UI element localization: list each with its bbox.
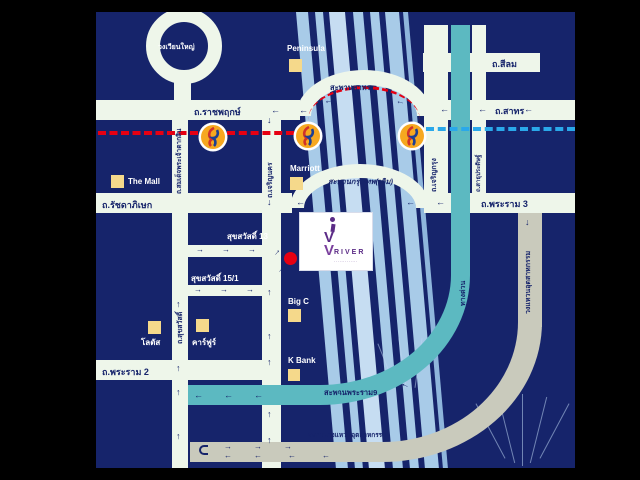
arrow-right-icon: → (220, 286, 228, 294)
arrow-left-icon: ← (224, 452, 232, 460)
bts-station-icon (198, 122, 228, 152)
location-map: วงเวียนใหญ่ ถ.ราชพฤกษ์ ถ.สีลม ถ.สาทร สะพ… (96, 12, 575, 468)
arrow-up-icon: ↑ (176, 388, 181, 397)
road-label-suksawat: ถ.สุขสวัสดิ์ (175, 298, 186, 344)
soi-label-suksawat-13: สุขสวัสดิ์ 13 (227, 230, 268, 243)
road-label-silom: ถ.สีลม (492, 57, 517, 71)
logo-tagline: ············· (334, 259, 358, 264)
arrow-left-icon: ← (288, 452, 296, 460)
landmark-label-kbank: K Bank (288, 356, 316, 365)
landmark-marker-bigc (288, 309, 301, 322)
arrow-left-icon: ← (524, 105, 533, 114)
project-location-marker (284, 252, 297, 265)
bridge-label-industrial-ring: สะพานวงแหวนอุตสาหกรรม (308, 430, 386, 440)
arrow-right-icon: → (194, 286, 202, 294)
landmark-marker-the-mall (111, 175, 124, 188)
ring-road-curve-bridge (360, 302, 542, 462)
bts-line-red-dashed-mid (227, 131, 294, 135)
road-label-rama2: ถ.พระราม 2 (102, 365, 149, 379)
arrow-right-icon: → (196, 246, 204, 254)
landmark-label-marriott: Marriott (290, 164, 320, 173)
bridge-label-rama9: สะพานพระราม9 (324, 387, 377, 399)
arrow-down-icon: ↓ (267, 116, 272, 125)
arrow-left-icon: ← (478, 105, 487, 114)
ring-road-horizontal (190, 442, 364, 462)
arrow-left-icon: ← (224, 391, 233, 400)
bridge-cable (530, 397, 547, 463)
landmark-label-peninsula: Peninsula (287, 44, 325, 53)
road-label-ratchaphruek: ถ.ราชพฤกษ์ (194, 105, 241, 119)
bridge-cable (522, 394, 523, 466)
expressway-vertical (451, 25, 470, 252)
landmark-label-bigc: Big C (288, 297, 309, 306)
road-label-charoen-nakhon: ถ.เจริญนคร (265, 148, 276, 198)
bts-station-icon (293, 121, 323, 151)
arrow-left-icon: ← (395, 96, 406, 107)
arrow-down-icon: ↓ (525, 218, 530, 227)
soi-label-suksawat-15-1: สุขสวัสดิ์ 15/1 (191, 272, 239, 285)
map-image-frame: วงเวียนใหญ่ ถ.ราชพฤกษ์ ถ.สีลม ถ.สาทร สะพ… (0, 0, 640, 480)
arrow-right-icon: → (254, 443, 262, 451)
road-label-sathorn: ถ.สาทร (495, 104, 524, 118)
arrow-up-icon: ↑ (267, 288, 272, 297)
landmark-label-lotus: โลตัส (141, 336, 160, 349)
landmark-marker-peninsula (289, 59, 302, 72)
arrow-left-icon: ← (436, 198, 445, 207)
expressway-horizontal (188, 385, 300, 405)
arrow-left-icon: ← (406, 198, 415, 207)
logo-i-dot (330, 217, 335, 222)
arrow-left-icon: ← (323, 95, 334, 106)
ivy-river-logo: V V RIVER ············· (300, 213, 372, 270)
expressway-label: ทางด่วน (458, 270, 469, 306)
roundabout-label: วงเวียนใหญ่ (158, 42, 195, 53)
road-label-sathu-pradit: ถ.สาธุประดิษฐ์ (474, 136, 484, 192)
road-label-ratchadaphisek: ถ.รัชดาภิเษก (102, 198, 152, 212)
arrow-up-icon: ↑ (267, 410, 272, 419)
bridge-cable (540, 403, 570, 458)
arrow-left-icon: ← (296, 198, 305, 207)
logo-brand-text: RIVER (334, 249, 365, 256)
arrow-right-icon: → (224, 443, 232, 451)
road-label-taksin: ถ.สมเด็จพระเจ้าตากสิน (175, 122, 185, 194)
arrow-up-icon: ↑ (267, 332, 272, 341)
landmark-marker-carrefour (196, 319, 209, 332)
road-label-rama3: ถ.พระราม 3 (481, 197, 528, 211)
landmark-marker-lotus (148, 321, 161, 334)
landmark-label-the-mall: The Mall (128, 177, 160, 186)
arrow-right-icon: → (222, 246, 230, 254)
arrow-left-icon: ← (194, 391, 203, 400)
bridge-label-sathorn: สะพานสาทร (330, 82, 371, 94)
arrow-left-icon: ← (322, 452, 330, 460)
arrow-down-icon: ↓ (267, 198, 272, 207)
bridge-label-krungthep: สะพานกรุงเทพ(เดิม) (328, 176, 393, 188)
bts-station-icon (397, 121, 427, 151)
road-label-charoen-krung: ถ.เจริญกรุง (429, 136, 440, 192)
logo-chevron: V (324, 243, 334, 258)
arrow-right-icon: → (248, 246, 256, 254)
arrow-right-icon: → (284, 443, 292, 451)
arrow-left-icon: ← (440, 105, 449, 114)
arrow-left-icon: ← (254, 391, 263, 400)
landmark-marker-marriott (290, 177, 303, 190)
arrow-up-icon: ↑ (176, 364, 181, 373)
arrow-up-icon: ↑ (176, 432, 181, 441)
landmark-marker-kbank (288, 369, 300, 381)
arrow-left-icon: ← (299, 106, 308, 115)
arrow-left-icon: ← (271, 106, 280, 115)
arrow-up-icon: ↑ (267, 358, 272, 367)
landmark-label-carrefour: คาร์ฟูร์ (192, 336, 216, 349)
bts-line-blue-dashed-east (426, 127, 575, 131)
road-label-industrial-ring: วงแหวนอุตสาหกรรม (523, 230, 534, 314)
arrow-left-icon: ← (254, 452, 262, 460)
u-turn-icon (199, 445, 208, 455)
arrow-up-icon: ↑ (267, 436, 272, 445)
arrow-right-icon: → (246, 286, 254, 294)
